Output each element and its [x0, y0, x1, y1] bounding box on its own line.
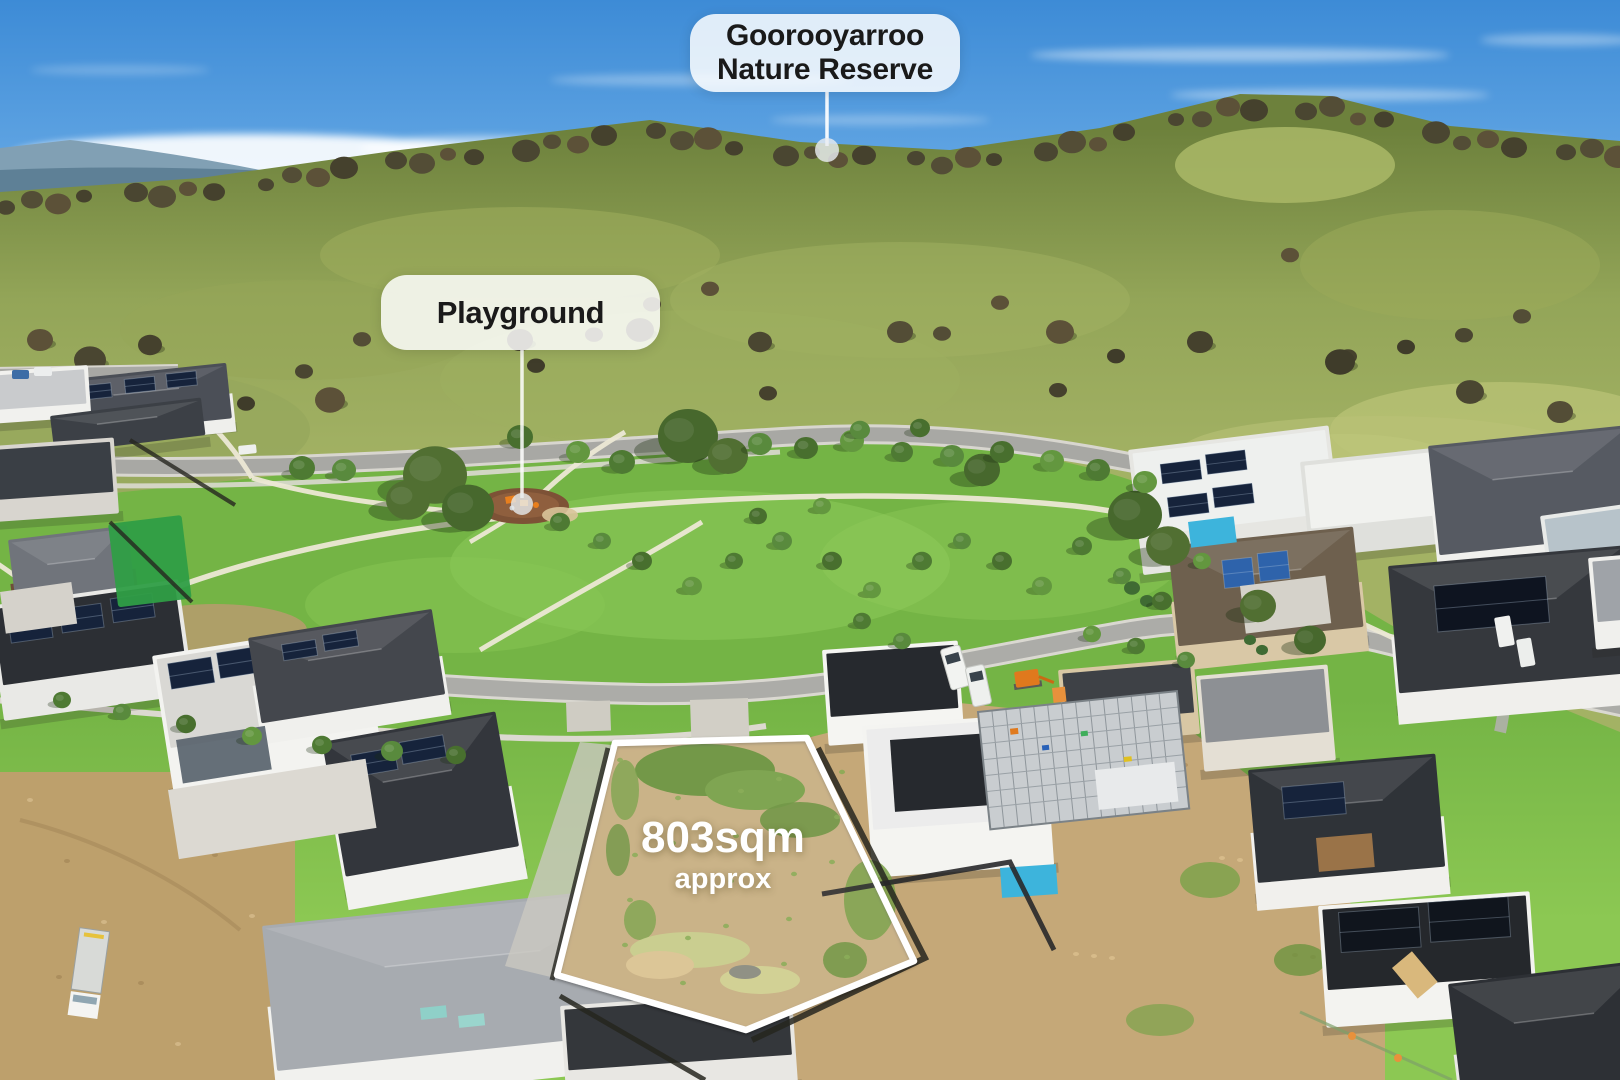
- lot-area-label: 803sqm approx: [573, 816, 873, 894]
- reserve-label-line1: Goorooyarroo: [726, 19, 924, 53]
- scene-canvas: [0, 0, 1620, 1080]
- playground-marker-dot: [511, 493, 533, 515]
- playground-label-pill: Playground: [381, 275, 660, 350]
- lot-area-value: 803sqm: [573, 816, 873, 860]
- lot-area-qualifier: approx: [573, 865, 873, 894]
- aerial-photo: Goorooyarroo Nature Reserve Playground 8…: [0, 0, 1620, 1080]
- reserve-marker-dot: [815, 138, 839, 162]
- reserve-label-line2: Nature Reserve: [717, 53, 933, 87]
- reserve-label-pill: Goorooyarroo Nature Reserve: [690, 14, 960, 92]
- playground-label-text: Playground: [437, 296, 605, 330]
